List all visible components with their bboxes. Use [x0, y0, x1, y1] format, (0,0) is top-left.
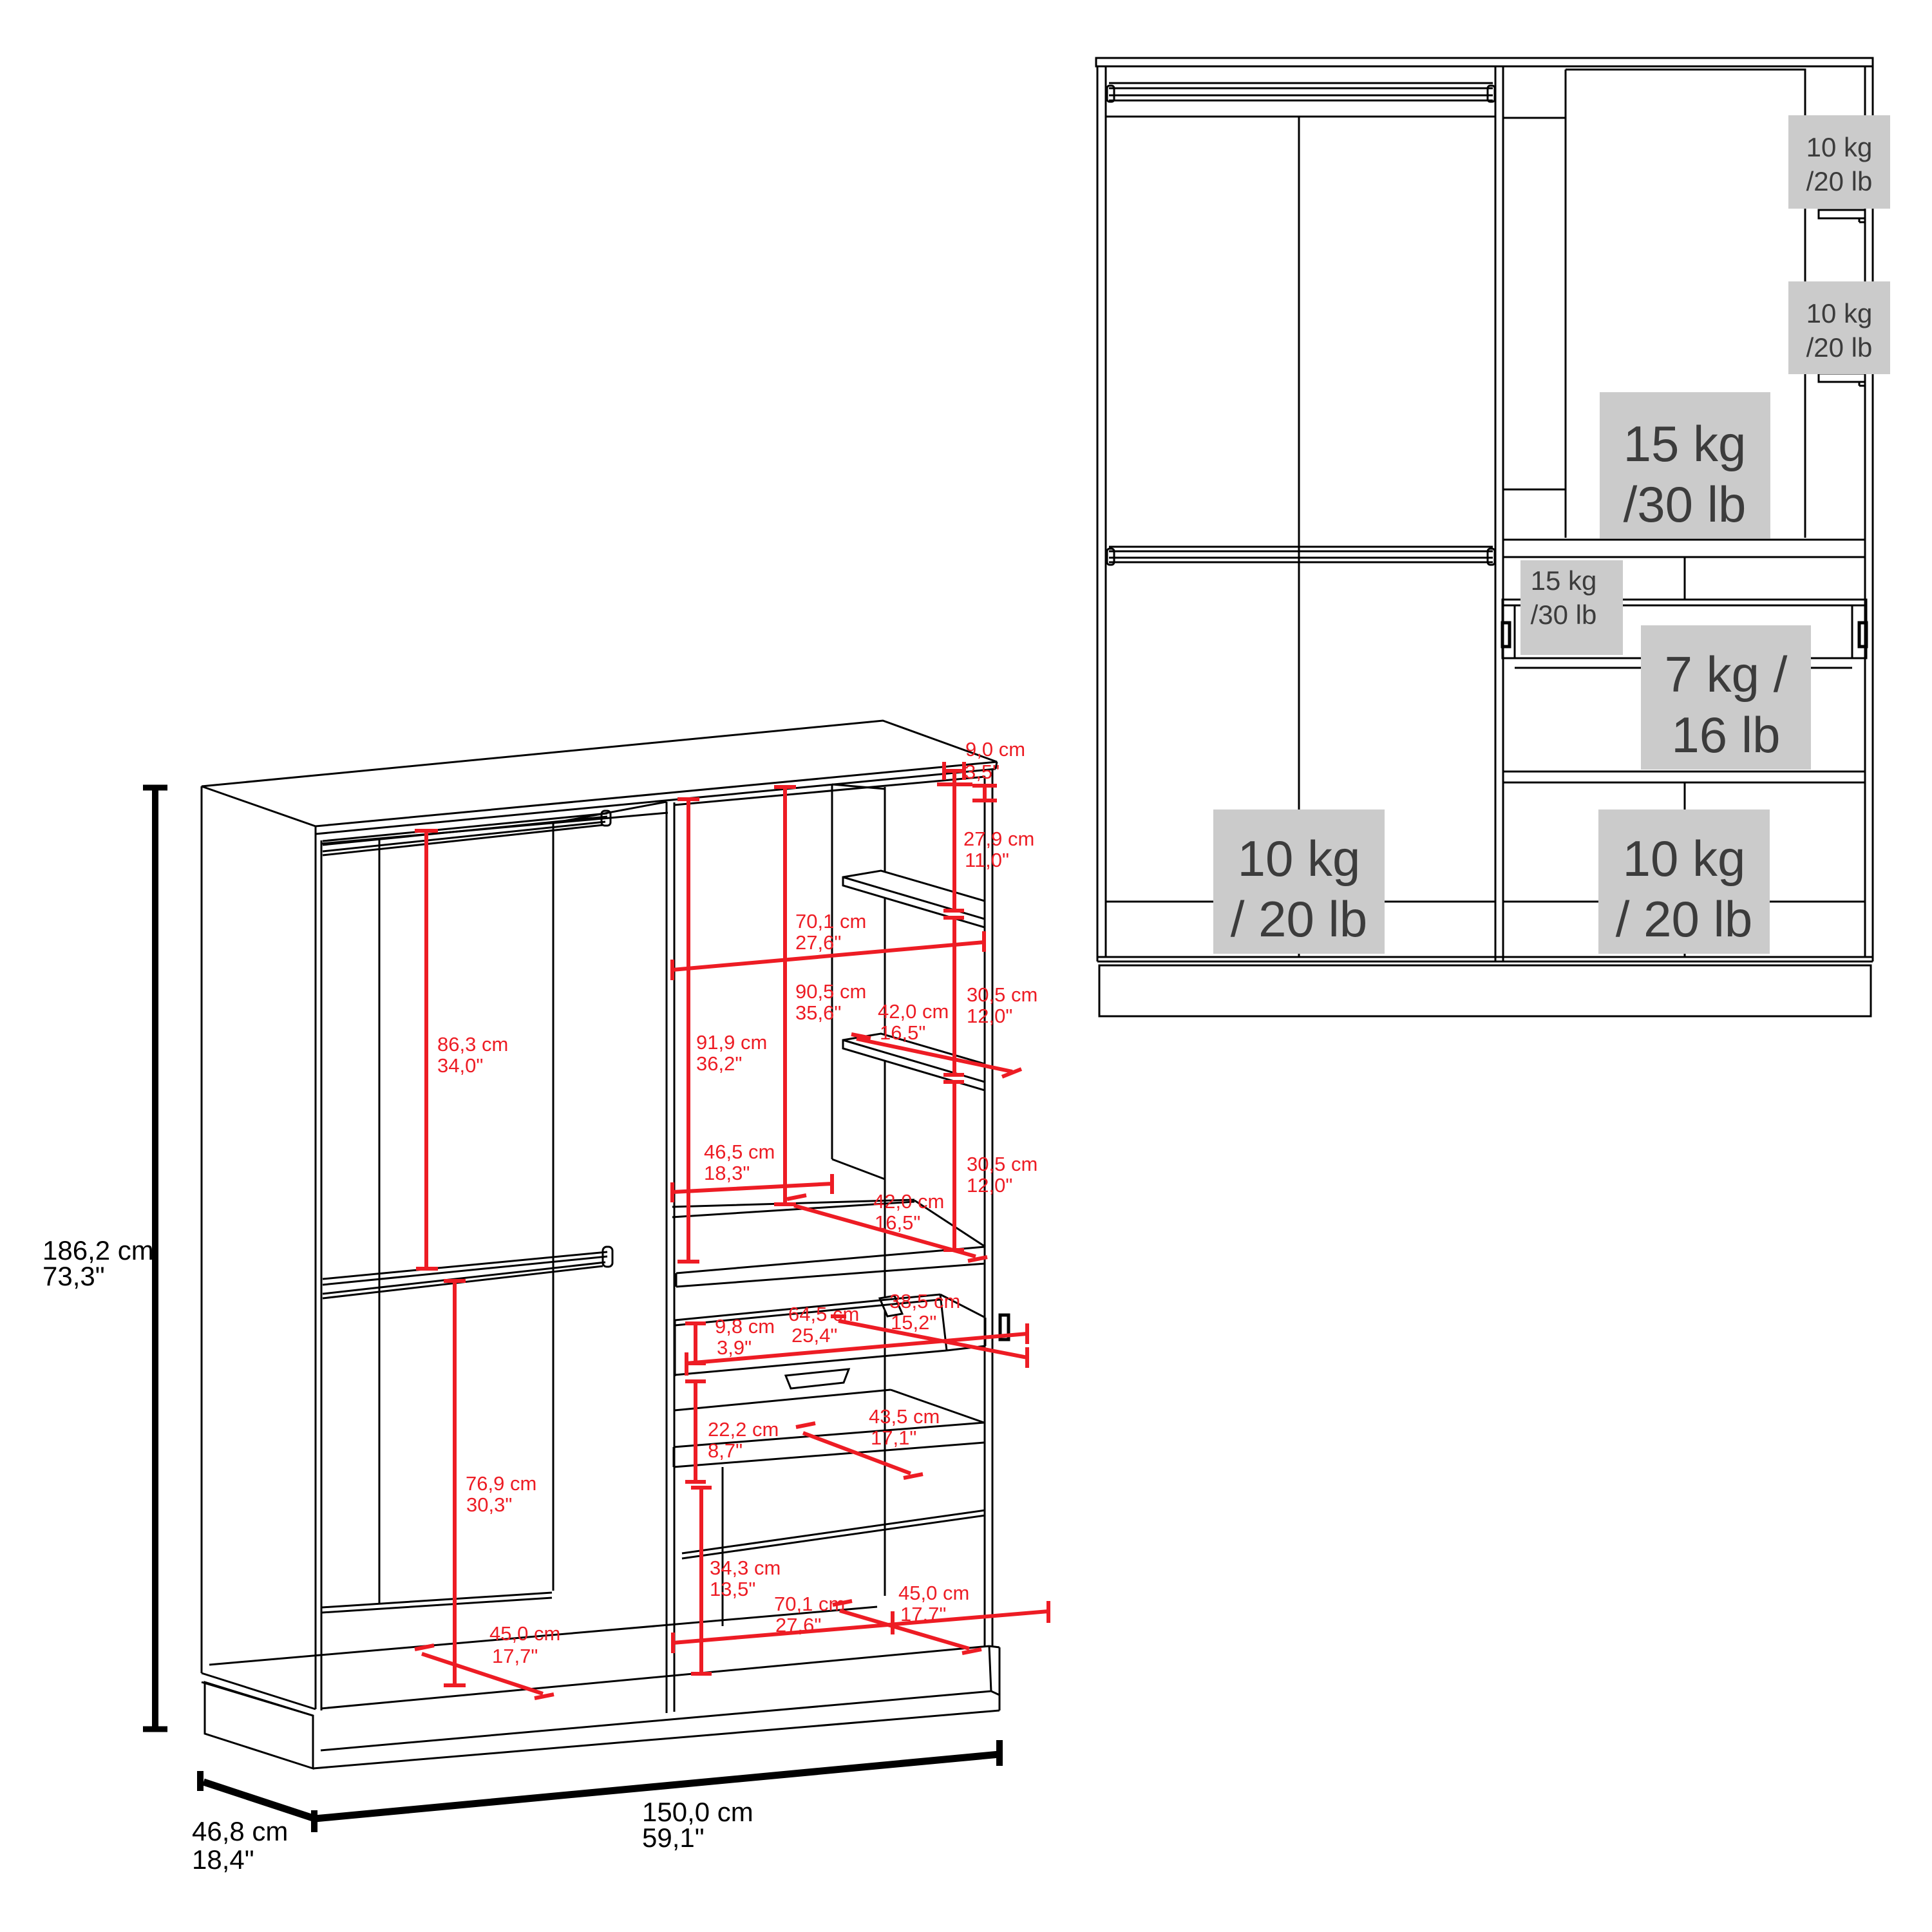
svg-text:86,3 cm: 86,3 cm — [437, 1033, 508, 1056]
svg-text:46,8 cm: 46,8 cm — [192, 1816, 288, 1846]
svg-text:42,0 cm: 42,0 cm — [878, 1000, 949, 1023]
svg-text:8,7": 8,7" — [708, 1439, 743, 1462]
svg-text:16,5": 16,5" — [875, 1211, 920, 1234]
svg-text:90,5 cm: 90,5 cm — [795, 980, 866, 1003]
svg-text:18,4": 18,4" — [192, 1844, 254, 1875]
svg-text:10 kg: 10 kg — [1806, 132, 1873, 162]
svg-text:22,2 cm: 22,2 cm — [708, 1418, 779, 1441]
svg-text:27,6": 27,6" — [795, 931, 841, 954]
svg-text:/ 20 lb: / 20 lb — [1231, 891, 1367, 947]
svg-text:34,3 cm: 34,3 cm — [710, 1557, 781, 1579]
svg-text:/ 20 lb: / 20 lb — [1616, 891, 1752, 947]
svg-text:46,5 cm: 46,5 cm — [704, 1141, 775, 1163]
svg-text:15,2": 15,2" — [891, 1311, 936, 1334]
svg-text:16 lb: 16 lb — [1671, 706, 1780, 763]
svg-text:70,1 cm: 70,1 cm — [795, 910, 866, 933]
svg-text:/20 lb: /20 lb — [1806, 166, 1873, 196]
svg-text:45,0 cm: 45,0 cm — [489, 1622, 560, 1645]
svg-text:45,0 cm: 45,0 cm — [898, 1582, 969, 1604]
svg-text:42,0 cm: 42,0 cm — [873, 1190, 944, 1213]
svg-text:30,5 cm: 30,5 cm — [967, 1153, 1037, 1175]
svg-text:9,8 cm: 9,8 cm — [715, 1315, 775, 1338]
svg-text:13,5": 13,5" — [710, 1578, 755, 1600]
svg-text:12,0": 12,0" — [967, 1174, 1012, 1197]
svg-text:15 kg: 15 kg — [1531, 565, 1597, 596]
svg-text:30,5 cm: 30,5 cm — [967, 983, 1037, 1006]
svg-text:3,5": 3,5" — [965, 761, 999, 783]
svg-text:59,1": 59,1" — [642, 1823, 705, 1853]
svg-text:3,9": 3,9" — [717, 1336, 752, 1359]
svg-text:10 kg: 10 kg — [1806, 298, 1873, 328]
svg-text:/20 lb: /20 lb — [1806, 332, 1873, 363]
svg-text:9,0 cm: 9,0 cm — [965, 738, 1025, 761]
svg-text:27,6": 27,6" — [775, 1614, 821, 1636]
svg-text:11,0": 11,0" — [965, 849, 1009, 871]
svg-text:/30 lb: /30 lb — [1624, 476, 1747, 533]
svg-text:17,7": 17,7" — [492, 1645, 538, 1667]
svg-text:15 kg: 15 kg — [1624, 415, 1747, 472]
svg-text:17,1": 17,1" — [871, 1426, 916, 1449]
svg-text:30,3": 30,3" — [466, 1493, 512, 1516]
svg-text:10 kg: 10 kg — [1238, 830, 1361, 887]
svg-text:10 kg: 10 kg — [1623, 830, 1746, 887]
svg-text:/30 lb: /30 lb — [1531, 600, 1597, 630]
svg-text:38,5 cm: 38,5 cm — [889, 1290, 960, 1312]
svg-text:43,5 cm: 43,5 cm — [869, 1405, 940, 1428]
svg-text:17,7": 17,7" — [900, 1603, 946, 1625]
svg-text:70,1 cm: 70,1 cm — [774, 1593, 845, 1615]
svg-text:27,9 cm: 27,9 cm — [963, 828, 1034, 850]
svg-text:36,2": 36,2" — [696, 1052, 742, 1075]
svg-text:35,6": 35,6" — [795, 1001, 841, 1024]
svg-text:18,3": 18,3" — [704, 1162, 750, 1184]
svg-text:16,5": 16,5" — [880, 1021, 925, 1044]
svg-text:12,0": 12,0" — [967, 1005, 1012, 1027]
svg-text:76,9 cm: 76,9 cm — [466, 1472, 536, 1495]
svg-text:7 kg /: 7 kg / — [1665, 646, 1788, 703]
svg-text:91,9 cm: 91,9 cm — [696, 1031, 767, 1054]
svg-text:73,3": 73,3" — [43, 1261, 105, 1291]
svg-text:34,0": 34,0" — [437, 1054, 483, 1077]
svg-text:64,5 cm: 64,5 cm — [788, 1303, 859, 1325]
svg-text:25,4": 25,4" — [791, 1324, 837, 1347]
